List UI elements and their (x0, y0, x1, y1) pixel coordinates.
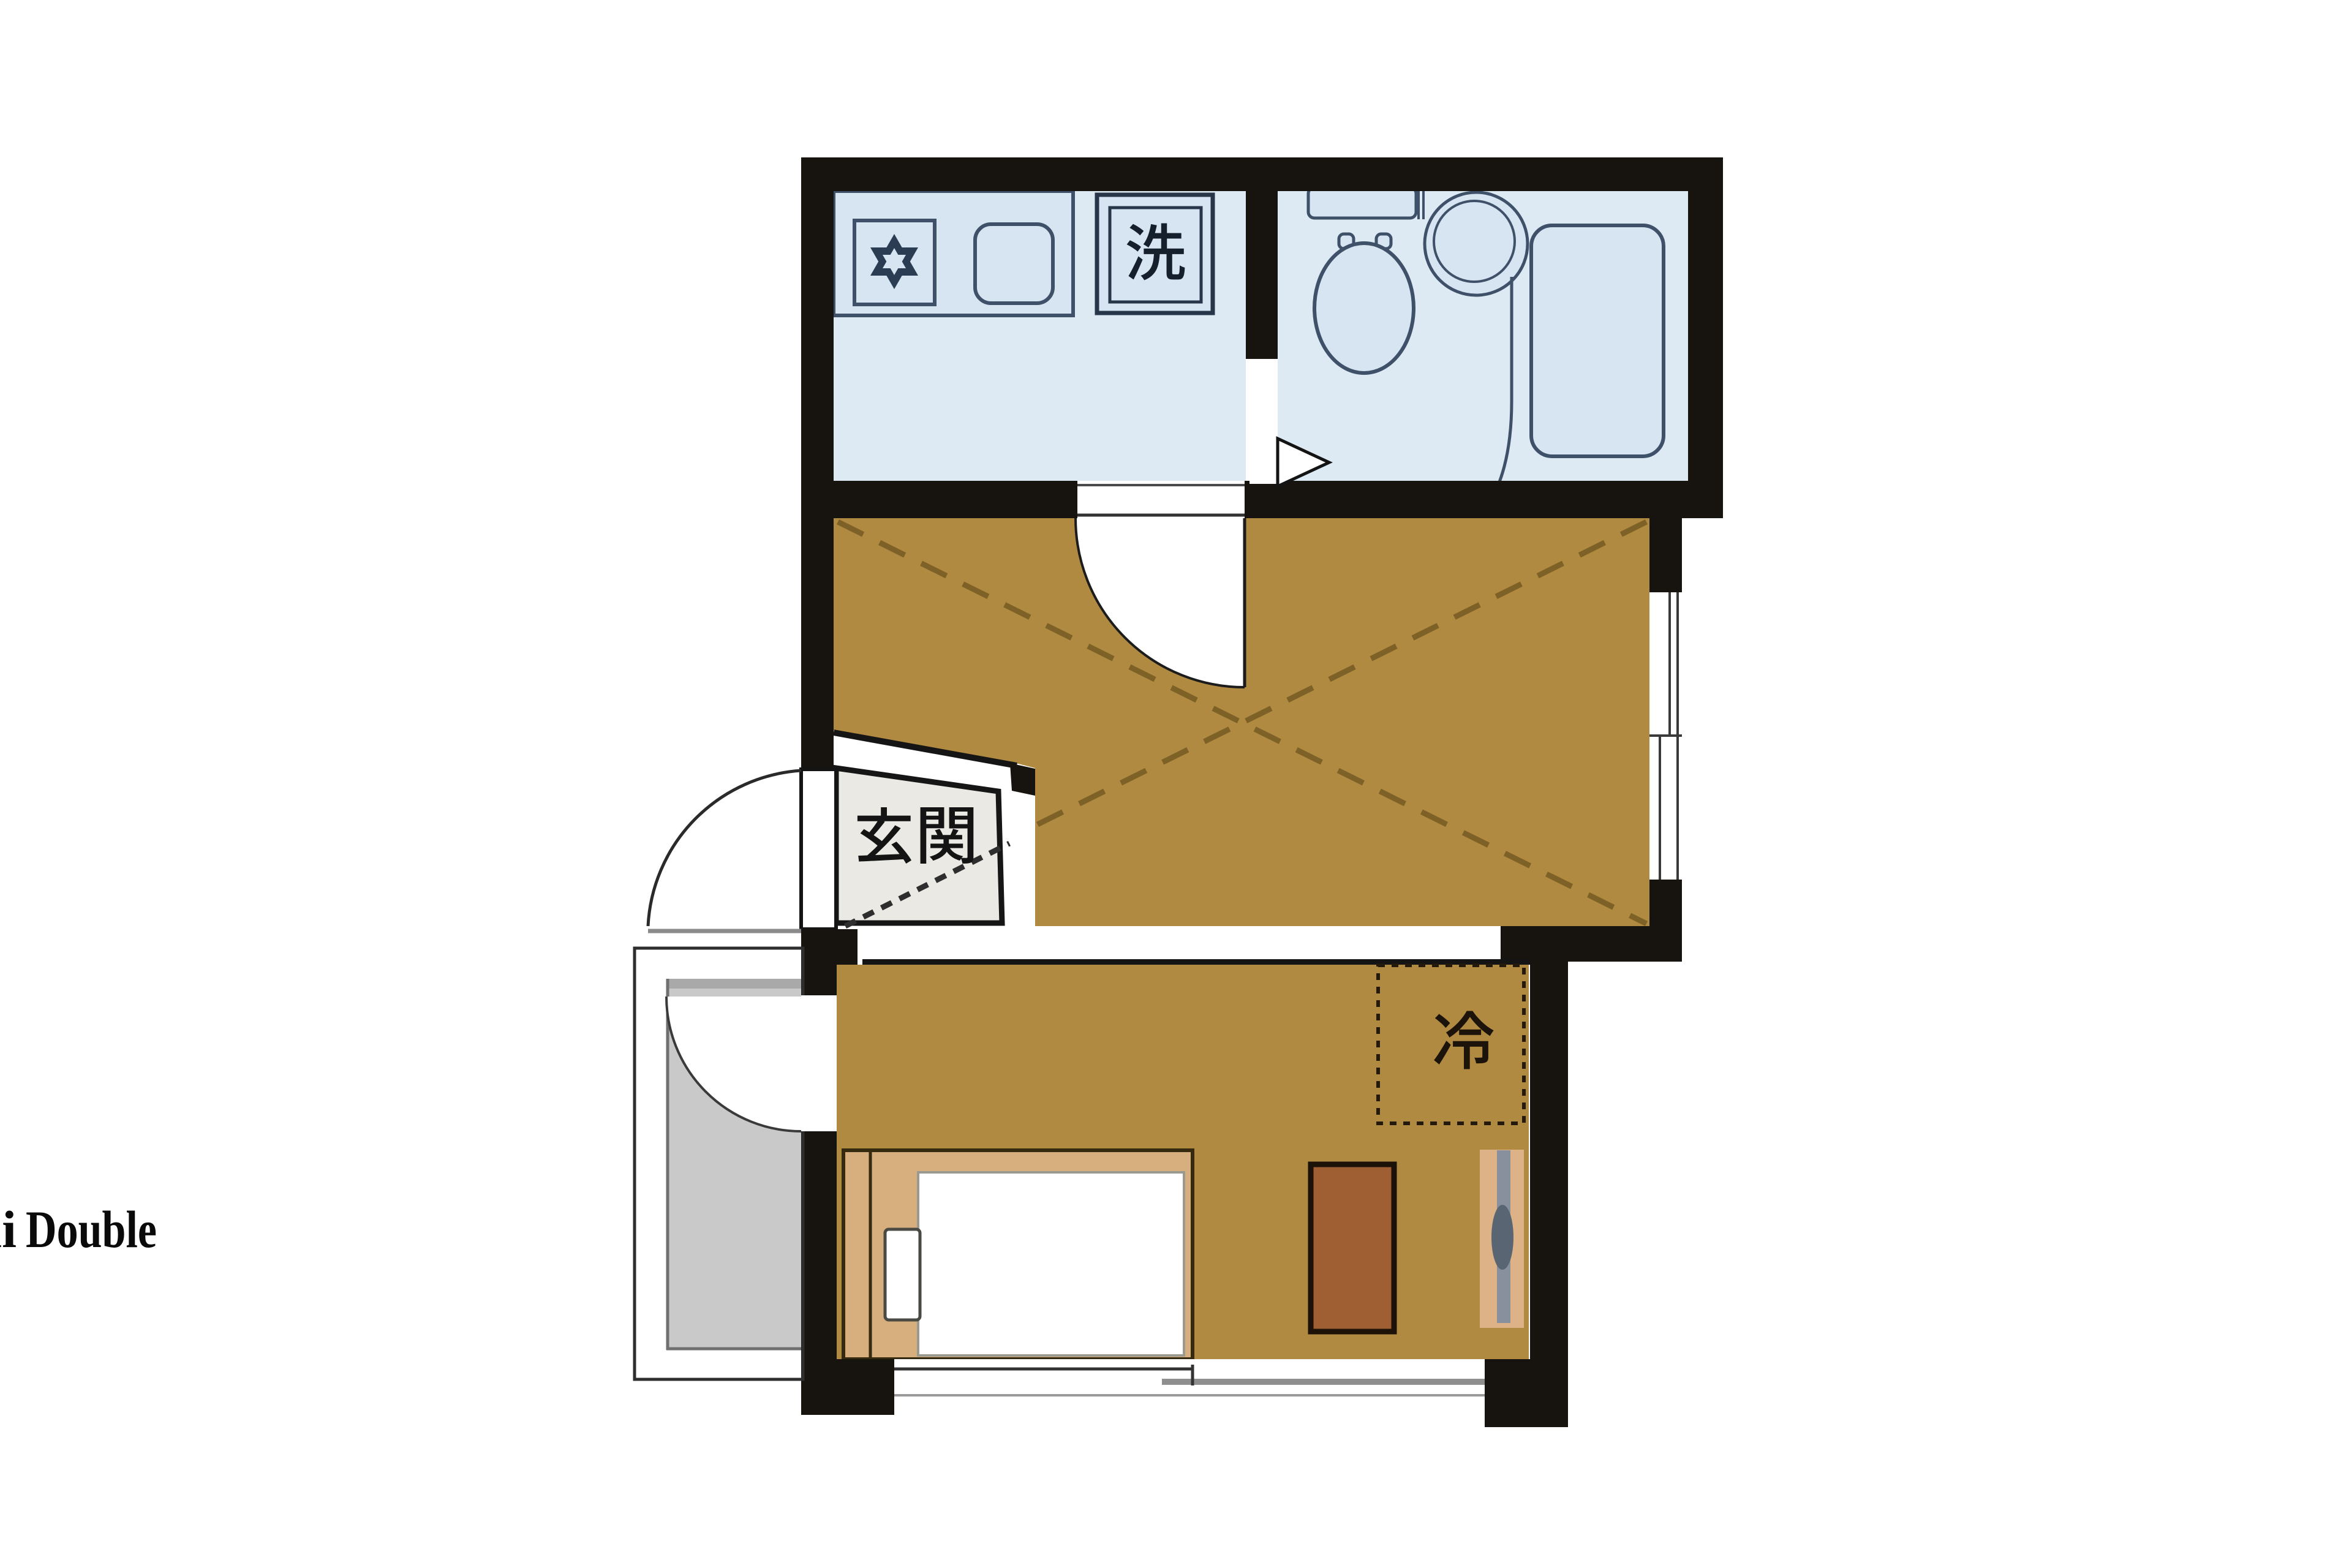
svg-text:Double: Double (26, 1200, 157, 1259)
svg-text:Semi: Semi (0, 1200, 17, 1259)
